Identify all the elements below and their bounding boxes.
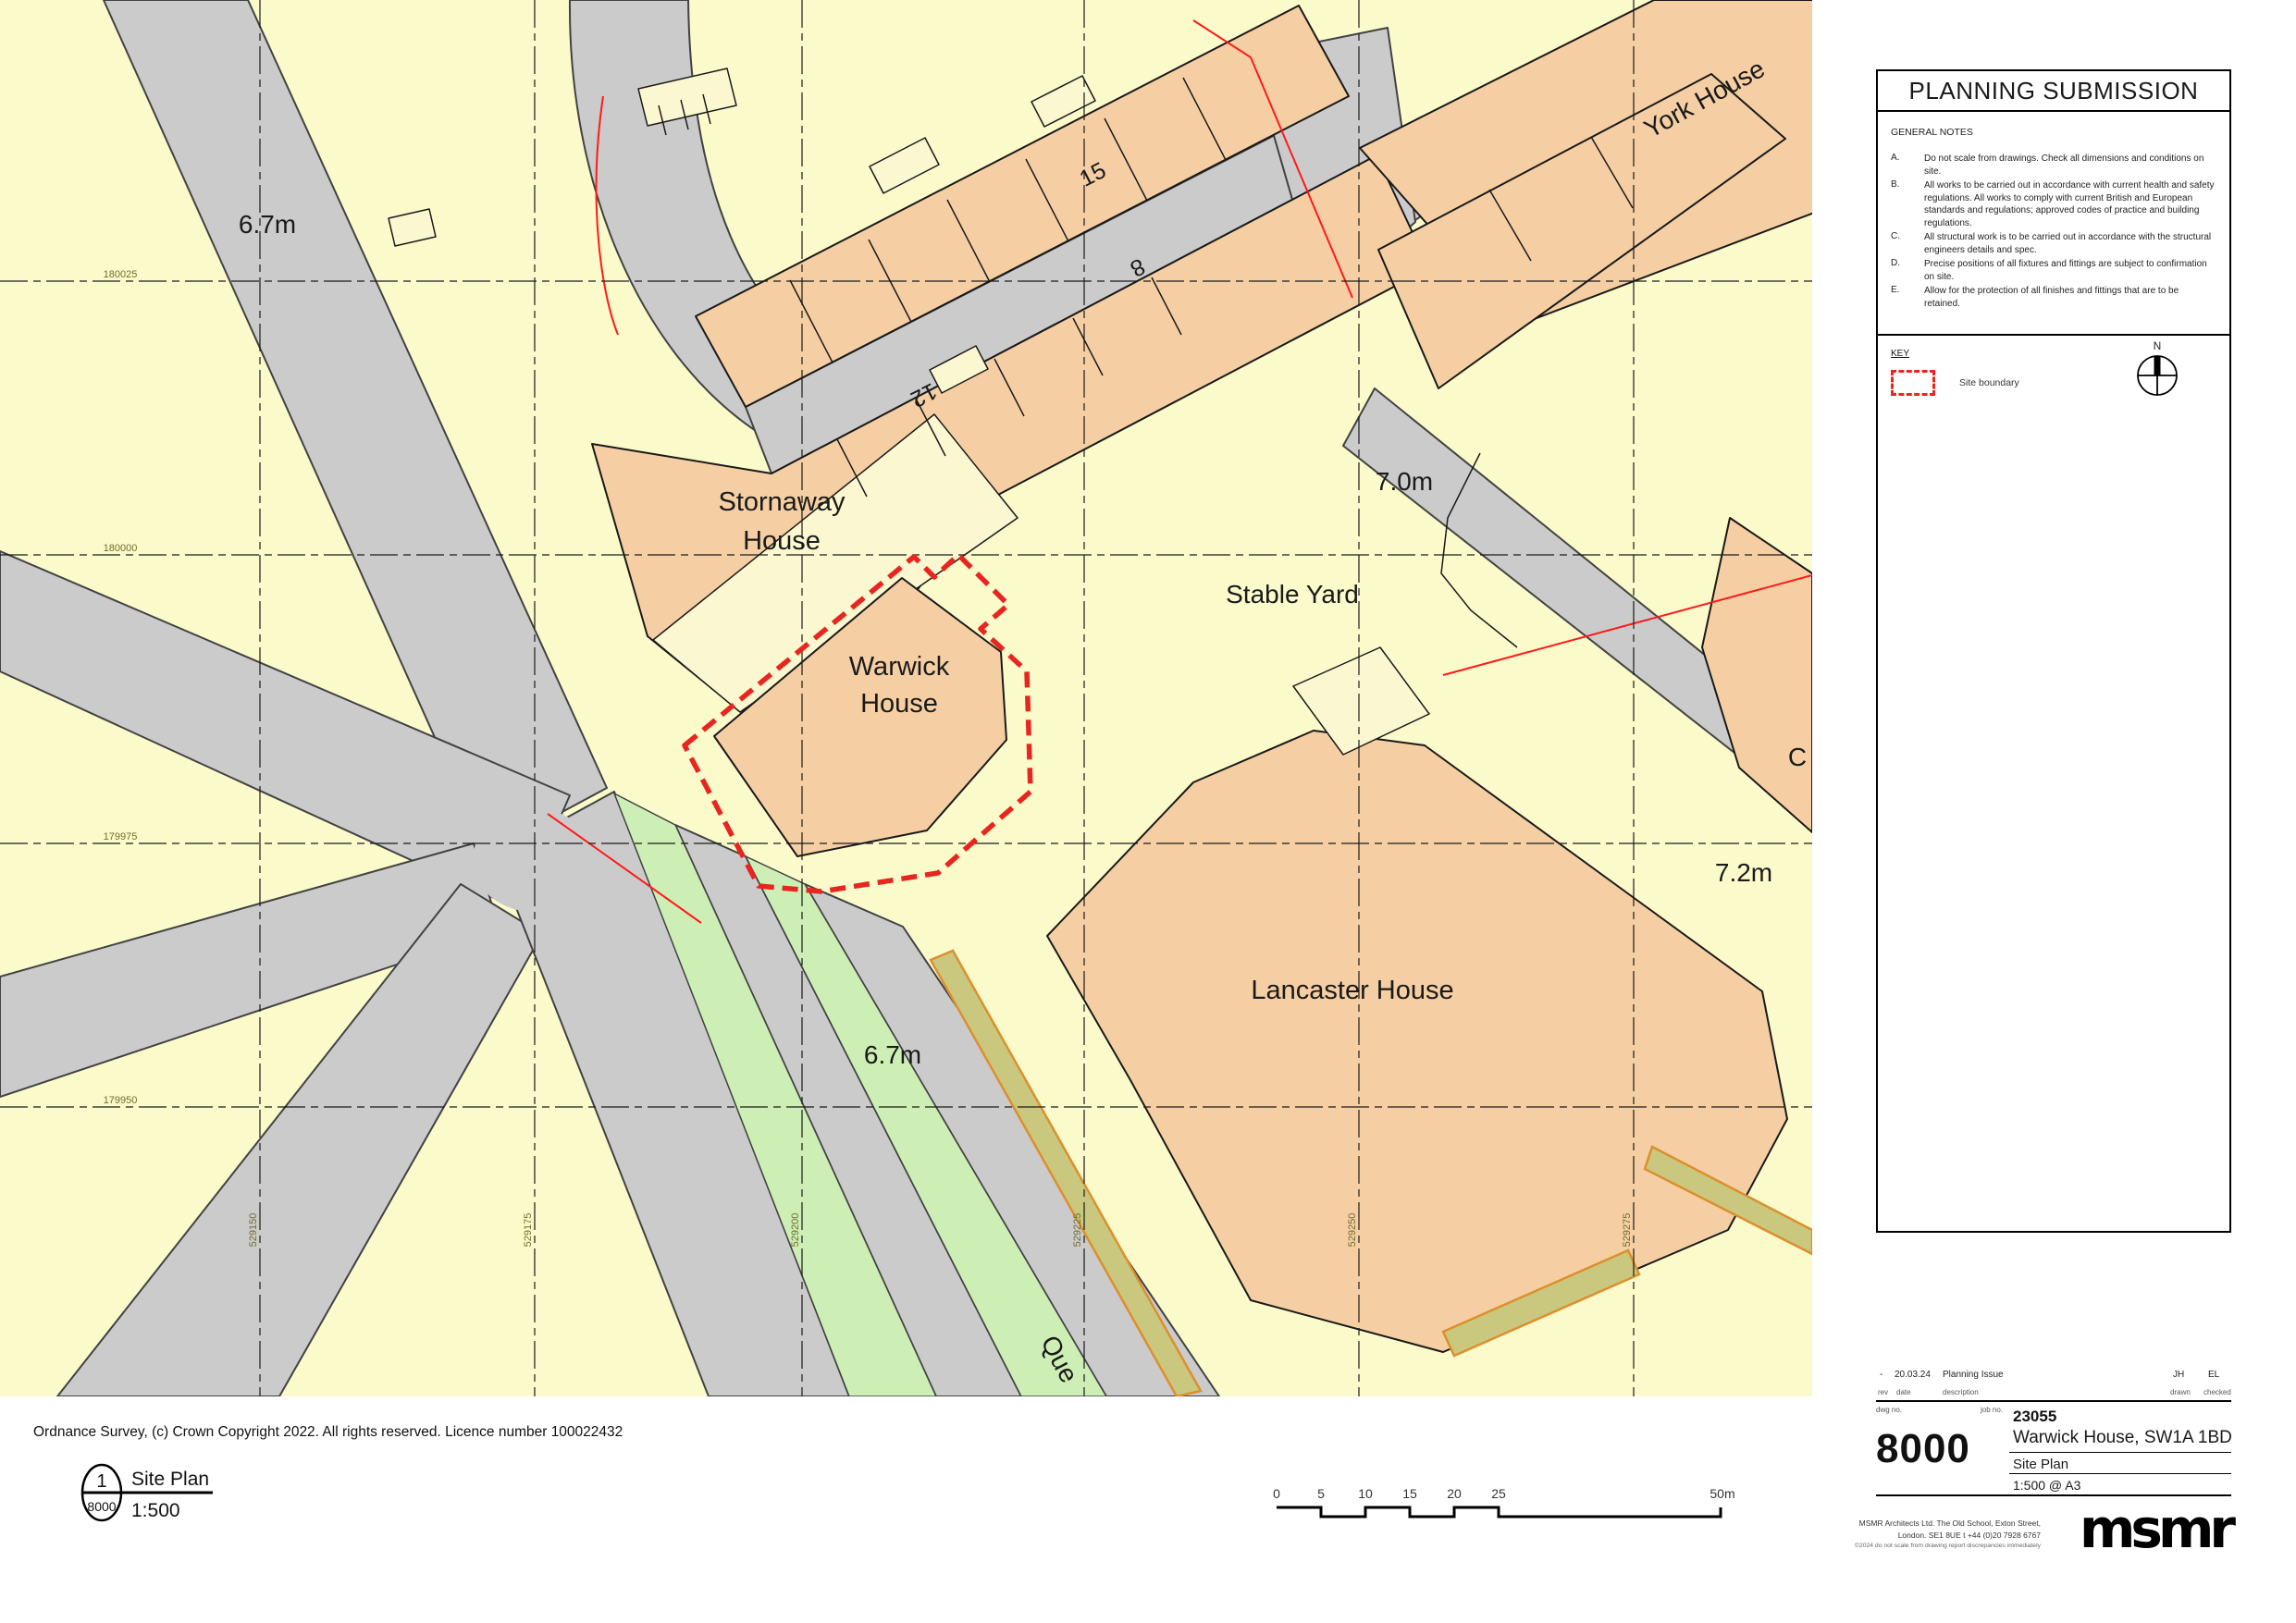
road-junction bbox=[473, 808, 595, 912]
grid-label: 529150 bbox=[248, 1213, 259, 1248]
north-label: N bbox=[2129, 339, 2185, 352]
scale-tick: 15 bbox=[1402, 1486, 1417, 1501]
msmr-logo: msmr bbox=[2063, 1502, 2231, 1555]
note-item: B. All works to be carried out in accord… bbox=[1891, 179, 2215, 229]
grid-label: 529275 bbox=[1622, 1213, 1633, 1248]
note-ref: A. bbox=[1891, 153, 1924, 178]
site-boundary-swatch bbox=[1891, 370, 1935, 396]
drawing-reference: 1 8000 Site Plan 1:500 bbox=[74, 1459, 296, 1531]
north-arrow: N bbox=[2129, 339, 2185, 401]
note-text: Precise positions of all fixtures and fi… bbox=[1924, 258, 2215, 283]
description-label: description bbox=[1943, 1388, 1979, 1396]
firm-address-1: MSMR Architects Ltd. The Old School, Ext… bbox=[1830, 1518, 2041, 1530]
divider bbox=[2009, 1452, 2231, 1453]
rev-drawn: JH bbox=[2173, 1370, 2184, 1380]
note-text: Do not scale from drawings. Check all di… bbox=[1924, 153, 2215, 178]
map-label-spot-height: 7.0m bbox=[1376, 467, 1433, 496]
map-label-partial: C bbox=[1788, 743, 1807, 771]
grid-label: 529200 bbox=[790, 1213, 801, 1248]
note-text: All structural work is to be carried out… bbox=[1924, 231, 2215, 256]
job-number: 23055 bbox=[2013, 1408, 2056, 1426]
job-no-label: job no. bbox=[1981, 1406, 2003, 1414]
note-ref: E. bbox=[1891, 285, 1924, 310]
note-ref: B. bbox=[1891, 179, 1924, 229]
north-arrow-icon bbox=[2134, 352, 2180, 399]
submission-header: PLANNING SUBMISSION bbox=[1878, 71, 2229, 112]
note-ref: D. bbox=[1891, 258, 1924, 283]
ref-scale: 1:500 bbox=[131, 1500, 180, 1521]
note-item: D. Precise positions of all fixtures and… bbox=[1891, 258, 2215, 283]
drawing-title: Site Plan bbox=[2013, 1457, 2068, 1472]
note-text: All works to be carried out in accordanc… bbox=[1924, 179, 2215, 229]
grid-label: 179975 bbox=[104, 831, 138, 842]
scale-tick: 0 bbox=[1273, 1486, 1280, 1501]
drawn-label: drawn bbox=[2170, 1388, 2191, 1396]
note-item: C. All structural work is to be carried … bbox=[1891, 231, 2215, 256]
scale-tick: 5 bbox=[1317, 1486, 1325, 1501]
note-ref: C. bbox=[1891, 231, 1924, 256]
rev-description: Planning Issue bbox=[1943, 1370, 2004, 1380]
rev-label: rev bbox=[1878, 1388, 1888, 1396]
os-copyright: Ordnance Survey, (c) Crown Copyright 202… bbox=[33, 1424, 623, 1441]
note-item: A. Do not scale from drawings. Check all… bbox=[1891, 153, 2215, 178]
grid-label: 529225 bbox=[1072, 1213, 1083, 1248]
title-block: PLANNING SUBMISSION GENERAL NOTES A. Do … bbox=[1876, 69, 2231, 1233]
drawing-number: 8000 bbox=[1876, 1426, 1970, 1472]
date-label: date bbox=[1896, 1388, 1911, 1396]
map-label-stornaway: House bbox=[743, 526, 821, 556]
project-name: Warwick House, SW1A 1BD bbox=[2013, 1428, 2232, 1448]
map-label-stornaway: Stornaway bbox=[718, 487, 846, 517]
note-text: Allow for the protection of all finishes… bbox=[1924, 285, 2215, 310]
grid-label: 180000 bbox=[104, 543, 138, 554]
firm-address-2: London. SE1 8UE t +44 (0)20 7928 6767 bbox=[1830, 1530, 2041, 1542]
divider bbox=[1876, 1400, 2231, 1402]
divider bbox=[2009, 1473, 2231, 1474]
map-label-lancaster: Lancaster House bbox=[1251, 976, 1453, 1005]
drawing-scale: 1:500 @ A3 bbox=[2013, 1478, 2080, 1493]
site-plan-map: 180025 180000 179975 179950 529150 52917… bbox=[0, 0, 1812, 1396]
scale-tick: 20 bbox=[1447, 1486, 1462, 1501]
firm-disclaimer: ©2024 do not scale from drawing report d… bbox=[1830, 1542, 2041, 1552]
key-section: KEY Site boundary N bbox=[1878, 336, 2229, 409]
note-item: E. Allow for the protection of all finis… bbox=[1891, 285, 2215, 310]
scale-tick: 10 bbox=[1358, 1486, 1373, 1501]
map-label-stable-yard: Stable Yard bbox=[1226, 580, 1359, 609]
general-notes: GENERAL NOTES A. Do not scale from drawi… bbox=[1878, 112, 2229, 319]
grid-label: 529175 bbox=[523, 1213, 534, 1248]
rev-value: - bbox=[1880, 1370, 1882, 1380]
scale-bar: 0 5 10 15 20 25 50m bbox=[1269, 1478, 1843, 1533]
firm-info: MSMR Architects Ltd. The Old School, Ext… bbox=[1830, 1518, 2041, 1552]
ref-sheet: 8000 bbox=[87, 1499, 116, 1514]
site-boundary-label: Site boundary bbox=[1959, 377, 2019, 388]
scale-tick: 50m bbox=[1710, 1486, 1734, 1501]
ref-number: 1 bbox=[96, 1471, 106, 1492]
map-label-spot-height: 7.2m bbox=[1715, 858, 1772, 887]
map-label-warwick: Warwick bbox=[849, 652, 950, 682]
divider bbox=[1876, 1494, 2231, 1496]
dwg-no-label: dwg no. bbox=[1876, 1406, 1902, 1414]
grid-label: 180025 bbox=[104, 269, 138, 280]
grid-label: 529250 bbox=[1347, 1213, 1358, 1248]
scale-tick: 25 bbox=[1491, 1486, 1506, 1501]
map-label-spot-height: 6.7m bbox=[864, 1040, 921, 1069]
ref-title: Site Plan bbox=[131, 1469, 209, 1490]
rev-checked: EL bbox=[2208, 1370, 2219, 1380]
map-label-spot-height: 6.7m bbox=[239, 210, 296, 239]
map-label-warwick: House bbox=[860, 689, 938, 719]
general-notes-title: GENERAL NOTES bbox=[1891, 127, 2215, 138]
rev-date: 20.03.24 bbox=[1895, 1370, 1931, 1380]
planning-drawing-page: 180025 180000 179975 179950 529150 52917… bbox=[0, 0, 2296, 1623]
grid-label: 179950 bbox=[104, 1095, 138, 1106]
checked-label: checked bbox=[2203, 1388, 2231, 1396]
